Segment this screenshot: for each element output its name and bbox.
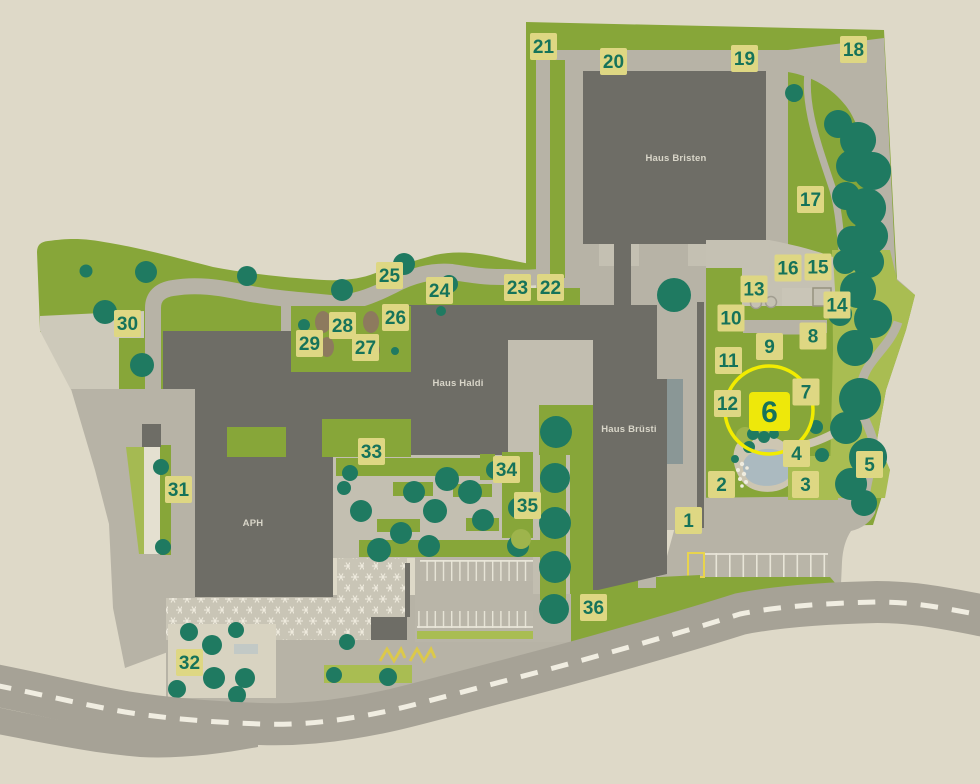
svg-text:16: 16	[777, 259, 798, 280]
svg-text:21: 21	[533, 37, 555, 58]
svg-text:25: 25	[379, 266, 401, 287]
svg-text:4: 4	[791, 444, 802, 465]
svg-text:2: 2	[716, 475, 727, 496]
svg-text:35: 35	[517, 496, 539, 517]
svg-text:19: 19	[734, 49, 755, 70]
svg-text:15: 15	[807, 258, 829, 279]
svg-text:18: 18	[843, 40, 864, 61]
svg-text:APH: APH	[243, 518, 264, 529]
svg-text:27: 27	[355, 338, 376, 359]
svg-text:24: 24	[429, 281, 451, 302]
svg-text:23: 23	[507, 278, 528, 299]
svg-text:7: 7	[801, 383, 812, 404]
svg-text:1: 1	[683, 511, 694, 532]
svg-text:12: 12	[717, 394, 738, 415]
svg-text:6: 6	[761, 396, 778, 429]
svg-text:29: 29	[299, 334, 320, 355]
svg-text:30: 30	[117, 314, 138, 335]
svg-text:20: 20	[603, 52, 624, 73]
svg-text:33: 33	[361, 442, 382, 463]
svg-text:31: 31	[168, 480, 190, 501]
svg-text:36: 36	[583, 598, 604, 619]
svg-text:9: 9	[764, 337, 775, 358]
svg-text:32: 32	[179, 653, 200, 674]
svg-text:3: 3	[800, 475, 811, 496]
svg-text:26: 26	[385, 308, 406, 329]
svg-text:Haus Bristen: Haus Bristen	[645, 153, 706, 164]
svg-text:Haus Haldi: Haus Haldi	[432, 378, 483, 389]
svg-text:8: 8	[808, 327, 819, 348]
svg-text:17: 17	[800, 190, 821, 211]
svg-text:14: 14	[826, 296, 848, 317]
svg-text:13: 13	[743, 280, 764, 301]
svg-text:10: 10	[720, 309, 741, 330]
svg-text:Haus Brüsti: Haus Brüsti	[601, 424, 657, 435]
svg-text:34: 34	[496, 460, 518, 481]
svg-text:28: 28	[332, 316, 353, 337]
svg-text:22: 22	[540, 278, 561, 299]
svg-text:5: 5	[864, 455, 875, 476]
svg-text:11: 11	[718, 351, 739, 372]
